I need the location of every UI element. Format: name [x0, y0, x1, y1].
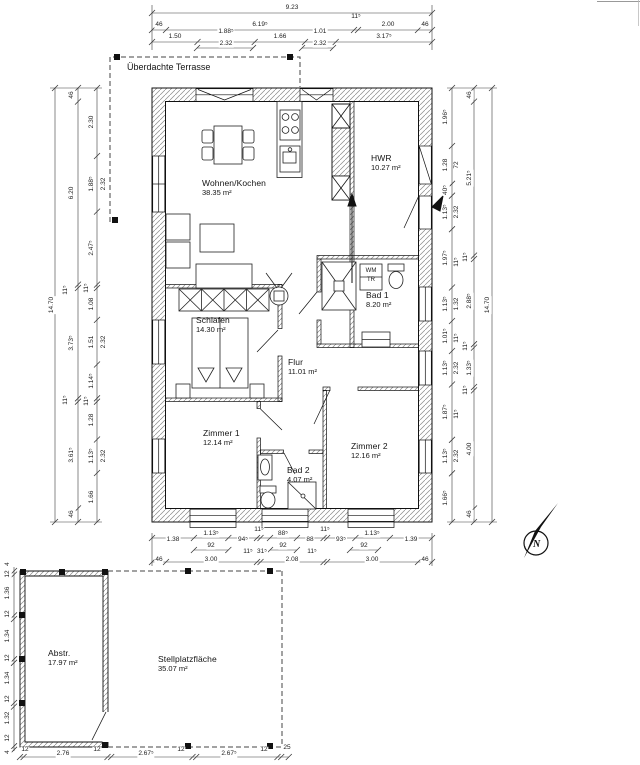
- nightstand: [176, 384, 190, 398]
- chimney-shaft: [332, 104, 350, 200]
- door-schlafen: [257, 330, 278, 352]
- coffee-table: [200, 224, 234, 252]
- compass-north-label: N: [532, 539, 541, 550]
- shed-walls: [20, 571, 108, 747]
- door-zimmer1: [261, 409, 283, 430]
- window-sill: [262, 522, 308, 528]
- armchair: [166, 214, 190, 240]
- entry-door-leaf: [404, 197, 419, 229]
- toilet: [261, 492, 275, 508]
- chair: [243, 130, 254, 143]
- nightstand: [250, 384, 264, 398]
- sofa: [196, 264, 252, 288]
- terrace-post: [114, 54, 120, 60]
- dining-table: [214, 126, 242, 164]
- door-bad1: [299, 292, 317, 314]
- chair: [202, 130, 213, 143]
- terrace-post: [287, 54, 293, 60]
- furniture-wohnen-kochen: [166, 102, 302, 306]
- furniture-schlafen: [176, 289, 269, 398]
- carport: [19, 568, 282, 749]
- fixtures-bad2: [258, 455, 316, 509]
- floorplan-drawing: N: [0, 0, 640, 765]
- window-sill: [348, 522, 394, 528]
- fixtures-bad1: [322, 262, 404, 347]
- chair: [243, 147, 254, 160]
- sheet-edge-marks: [597, 0, 640, 26]
- chair: [202, 147, 213, 160]
- compass-needle: [524, 503, 558, 558]
- toilet: [389, 272, 403, 289]
- carport-posts: [19, 568, 273, 749]
- compass: N: [524, 503, 558, 558]
- window-sill: [190, 522, 236, 528]
- door-bad2: [284, 453, 295, 474]
- terrace-post: [112, 217, 118, 223]
- door-zimmer2: [314, 390, 330, 424]
- floorplan-page: N Überdachte Terrasse Wohnen/Kochen 38.3…: [0, 0, 640, 765]
- toilet-tank: [388, 264, 404, 271]
- interior-door-leaves: [257, 292, 330, 474]
- armchair: [166, 242, 190, 268]
- entry-marker-arrow: [432, 196, 443, 211]
